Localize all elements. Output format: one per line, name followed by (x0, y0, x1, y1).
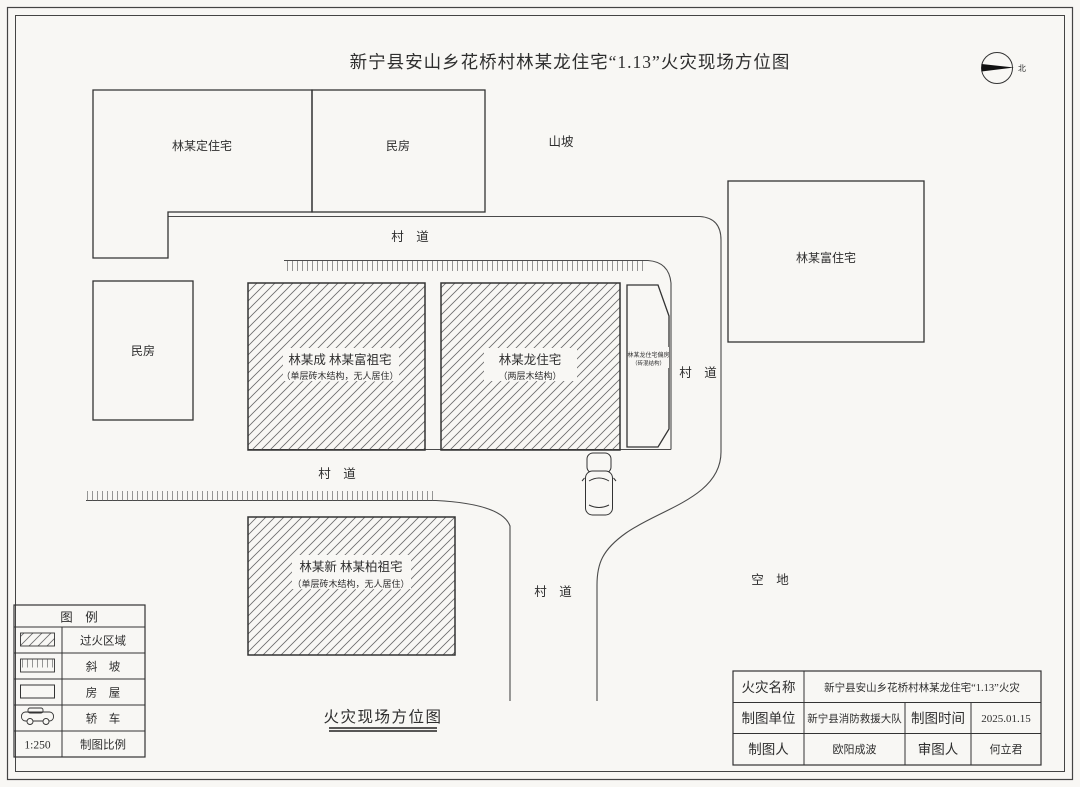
drafting-time-value: 2025.01.15 (981, 713, 1031, 725)
house-swatch (21, 685, 55, 698)
fire-name-label: 火灾名称 (742, 679, 796, 695)
caption-underline (329, 728, 437, 731)
reviewer-label: 审图人 (918, 742, 959, 757)
legend: 图 例 过火区域 斜 坡 房 屋 轿 车 1:250 制图比例 (14, 605, 145, 757)
legend-label-car: 轿 车 (86, 712, 121, 726)
building-lin-ding (93, 90, 312, 258)
legend-label-scale: 制图比例 (80, 738, 126, 752)
slope-hatch-top (284, 261, 646, 271)
label-lin-long-annex: 林某龙住宅偏房 (627, 351, 669, 359)
fire-scene-plan-page: 新宁县安山乡花桥村林某龙住宅“1.13”火灾现场方位图 北 林某定住宅 (0, 0, 1080, 787)
label-cheng-fu-zuzhai: 林某成 林某富祖宅 (288, 352, 391, 367)
sublabel-lin-long-annex: （砖混结构） (632, 359, 665, 367)
car-icon (582, 453, 616, 515)
label-road-middle: 村 道 (318, 467, 356, 481)
drafter-label: 制图人 (748, 742, 789, 757)
label-hillside: 山坡 (548, 135, 574, 149)
label-lin-ding: 林某定住宅 (172, 138, 232, 153)
legend-label-slope: 斜 坡 (86, 661, 121, 674)
page-title: 新宁县安山乡花桥村林某龙住宅“1.13”火灾现场方位图 (350, 52, 791, 72)
drafting-unit-label: 制图单位 (742, 711, 796, 726)
site-plan-drawing: 新宁县安山乡花桥村林某龙住宅“1.13”火灾现场方位图 北 林某定住宅 (0, 0, 1080, 787)
label-open-space: 空 地 (751, 573, 789, 587)
drafting-unit-value: 新宁县消防救援大队 (807, 712, 902, 725)
burned-area-swatch (21, 633, 55, 646)
sublabel-xin-bai-zuzhai: （单层砖木结构，无人居住） (292, 578, 409, 589)
drafter-value: 欧阳成波 (833, 743, 877, 756)
label-minfang-top: 民房 (386, 138, 410, 153)
legend-header: 图 例 (60, 611, 98, 625)
sublabel-lin-long: （两层木结构） (498, 370, 561, 381)
label-lin-fu: 林某富住宅 (796, 250, 856, 265)
legend-label-burned-area: 过火区域 (80, 635, 126, 648)
slope-swatch-ticks (21, 660, 54, 668)
fire-name-value: 新宁县安山乡花桥村林某龙住宅“1.13”火灾 (824, 681, 1020, 694)
legend-label-house: 房 屋 (86, 687, 121, 700)
slope-hatch-bottom (86, 491, 436, 501)
label-lin-long: 林某龙住宅 (499, 352, 562, 367)
north-label: 北 (1018, 64, 1026, 73)
car-swatch (22, 708, 54, 725)
label-road-top: 村 道 (391, 230, 429, 244)
sublabel-cheng-fu-zuzhai: （单层砖木结构，无人居住） (281, 370, 398, 381)
label-road-right: 村 道 (679, 366, 717, 380)
reviewer-value: 何立君 (990, 742, 1023, 756)
drawing-caption: 火灾现场方位图 (323, 708, 442, 726)
label-road-bottom: 村 道 (534, 585, 572, 599)
north-compass-icon: 北 (982, 53, 1027, 84)
drafting-time-label: 制图时间 (911, 711, 965, 726)
title-block: 火灾名称 新宁县安山乡花桥村林某龙住宅“1.13”火灾 制图单位 新宁县消防救援… (733, 671, 1041, 765)
label-xin-bai-zuzhai: 林某新 林某柏祖宅 (299, 559, 402, 574)
legend-scale-value: 1:250 (24, 740, 50, 752)
label-minfang-left: 民房 (131, 343, 155, 358)
